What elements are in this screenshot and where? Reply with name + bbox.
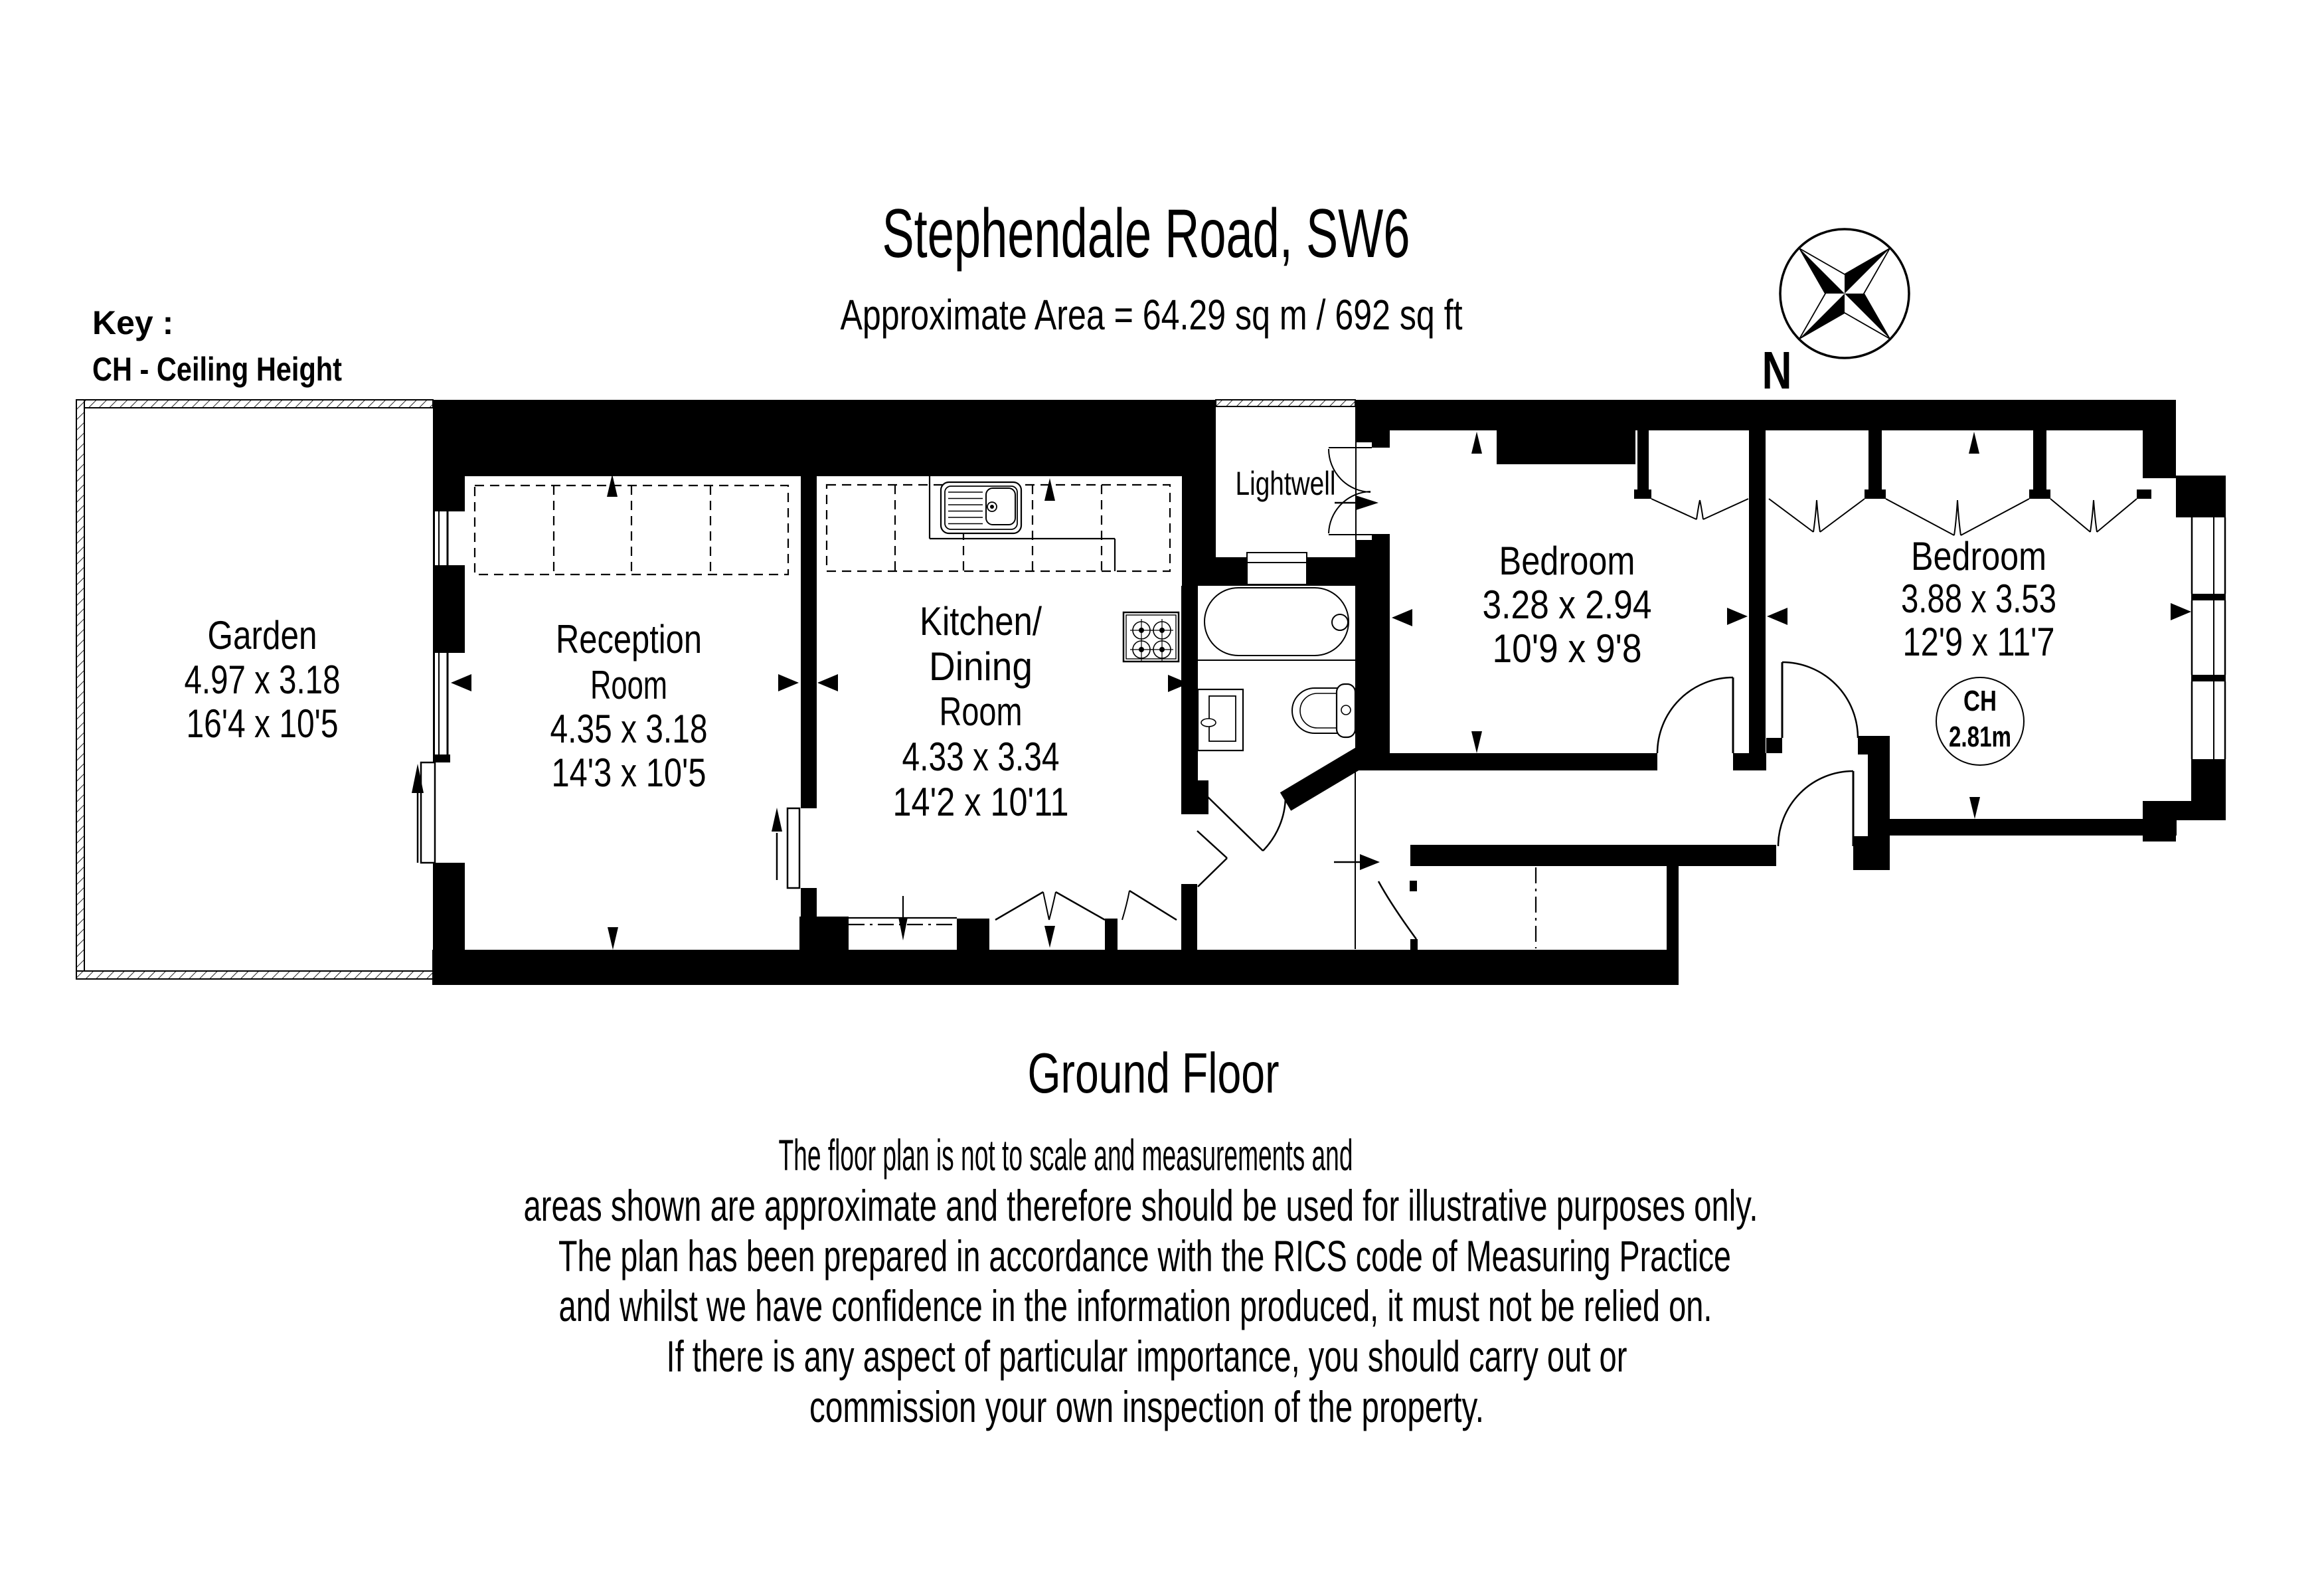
svg-text:Room: Room [590, 663, 667, 707]
svg-text:CH - Ceiling Height: CH - Ceiling Height [92, 351, 342, 388]
svg-text:2.81m: 2.81m [1949, 721, 2011, 753]
svg-text:4.35 x 3.18: 4.35 x 3.18 [550, 707, 708, 751]
svg-text:N: N [1762, 341, 1792, 400]
svg-text:The floor plan is not to scale: The floor plan is not to scale and measu… [779, 1130, 1353, 1180]
svg-text:Kitchen/: Kitchen/ [920, 599, 1042, 644]
svg-text:Lightwell: Lightwell [1236, 465, 1336, 502]
svg-text:Dining: Dining [929, 644, 1033, 689]
svg-text:Garden: Garden [208, 613, 317, 658]
svg-text:Bedroom: Bedroom [1911, 534, 2046, 578]
svg-text:Ground Floor: Ground Floor [1028, 1042, 1280, 1105]
svg-text:The plan has been prepared in: The plan has been prepared in accordance… [558, 1231, 1731, 1281]
svg-text:Reception: Reception [556, 617, 702, 662]
svg-text:CH: CH [1963, 685, 1997, 717]
svg-text:14'3 x 10'5: 14'3 x 10'5 [552, 751, 706, 795]
svg-text:and whilst we have confidence: and whilst we have confidence in the inf… [559, 1281, 1712, 1330]
svg-text:3.28 x 2.94: 3.28 x 2.94 [1483, 582, 1652, 627]
svg-text:4.97 x 3.18: 4.97 x 3.18 [185, 658, 341, 702]
svg-text:If there is any aspect of part: If there is any aspect of particular imp… [667, 1332, 1627, 1381]
svg-text:16'4 x 10'5: 16'4 x 10'5 [187, 701, 339, 746]
svg-text:Bedroom: Bedroom [1499, 539, 1635, 583]
svg-text:14'2 x 10'11: 14'2 x 10'11 [893, 780, 1069, 824]
svg-text:3.88 x 3.53: 3.88 x 3.53 [1901, 576, 2056, 621]
svg-text:areas shown are approximate an: areas shown are approximate and therefor… [524, 1181, 1758, 1230]
svg-text:Approximate Area = 64.29 sq m: Approximate Area = 64.29 sq m / 692 sq f… [841, 291, 1463, 339]
svg-text:10'9 x 9'8: 10'9 x 9'8 [1493, 626, 1642, 671]
svg-text:Room: Room [940, 689, 1023, 734]
svg-text:commission your own inspection: commission your own inspection of the pr… [809, 1382, 1484, 1431]
svg-text:Stephendale Road, SW6: Stephendale Road, SW6 [882, 195, 1410, 272]
svg-text:12'9 x 11'7: 12'9 x 11'7 [1903, 620, 2055, 664]
svg-text:Key :: Key : [92, 304, 173, 341]
svg-text:4.33 x 3.34: 4.33 x 3.34 [902, 735, 1060, 779]
